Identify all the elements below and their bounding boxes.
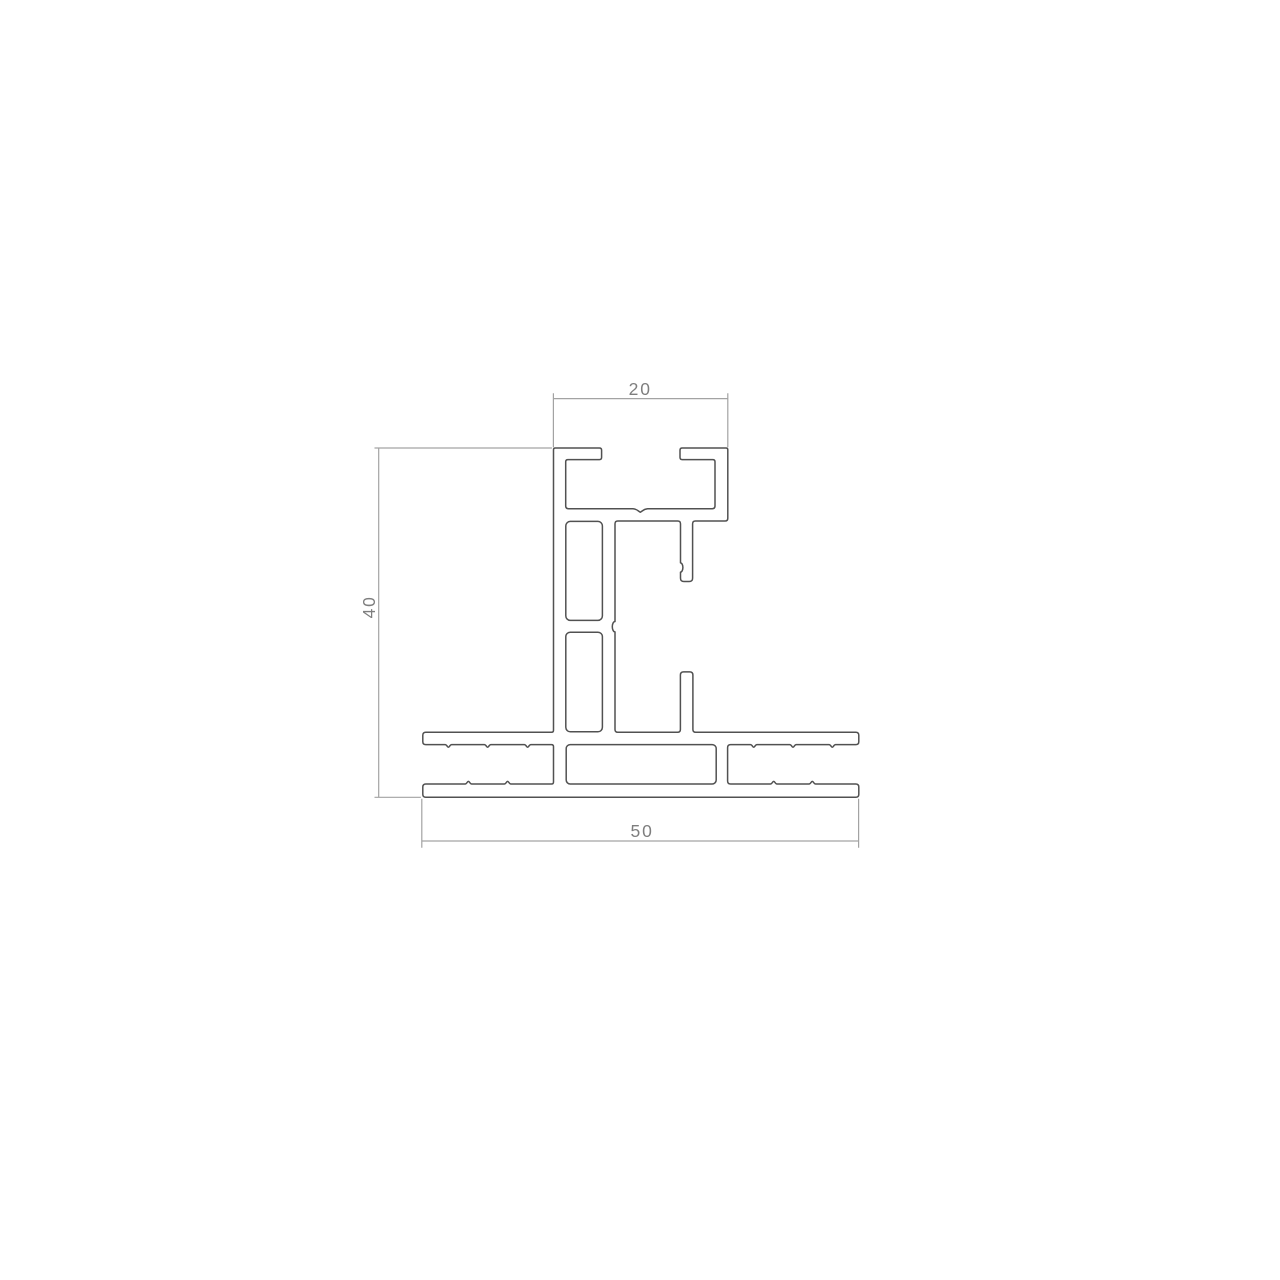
svg-text:40: 40 <box>359 595 379 618</box>
svg-text:50: 50 <box>631 821 654 841</box>
svg-text:20: 20 <box>629 379 652 399</box>
